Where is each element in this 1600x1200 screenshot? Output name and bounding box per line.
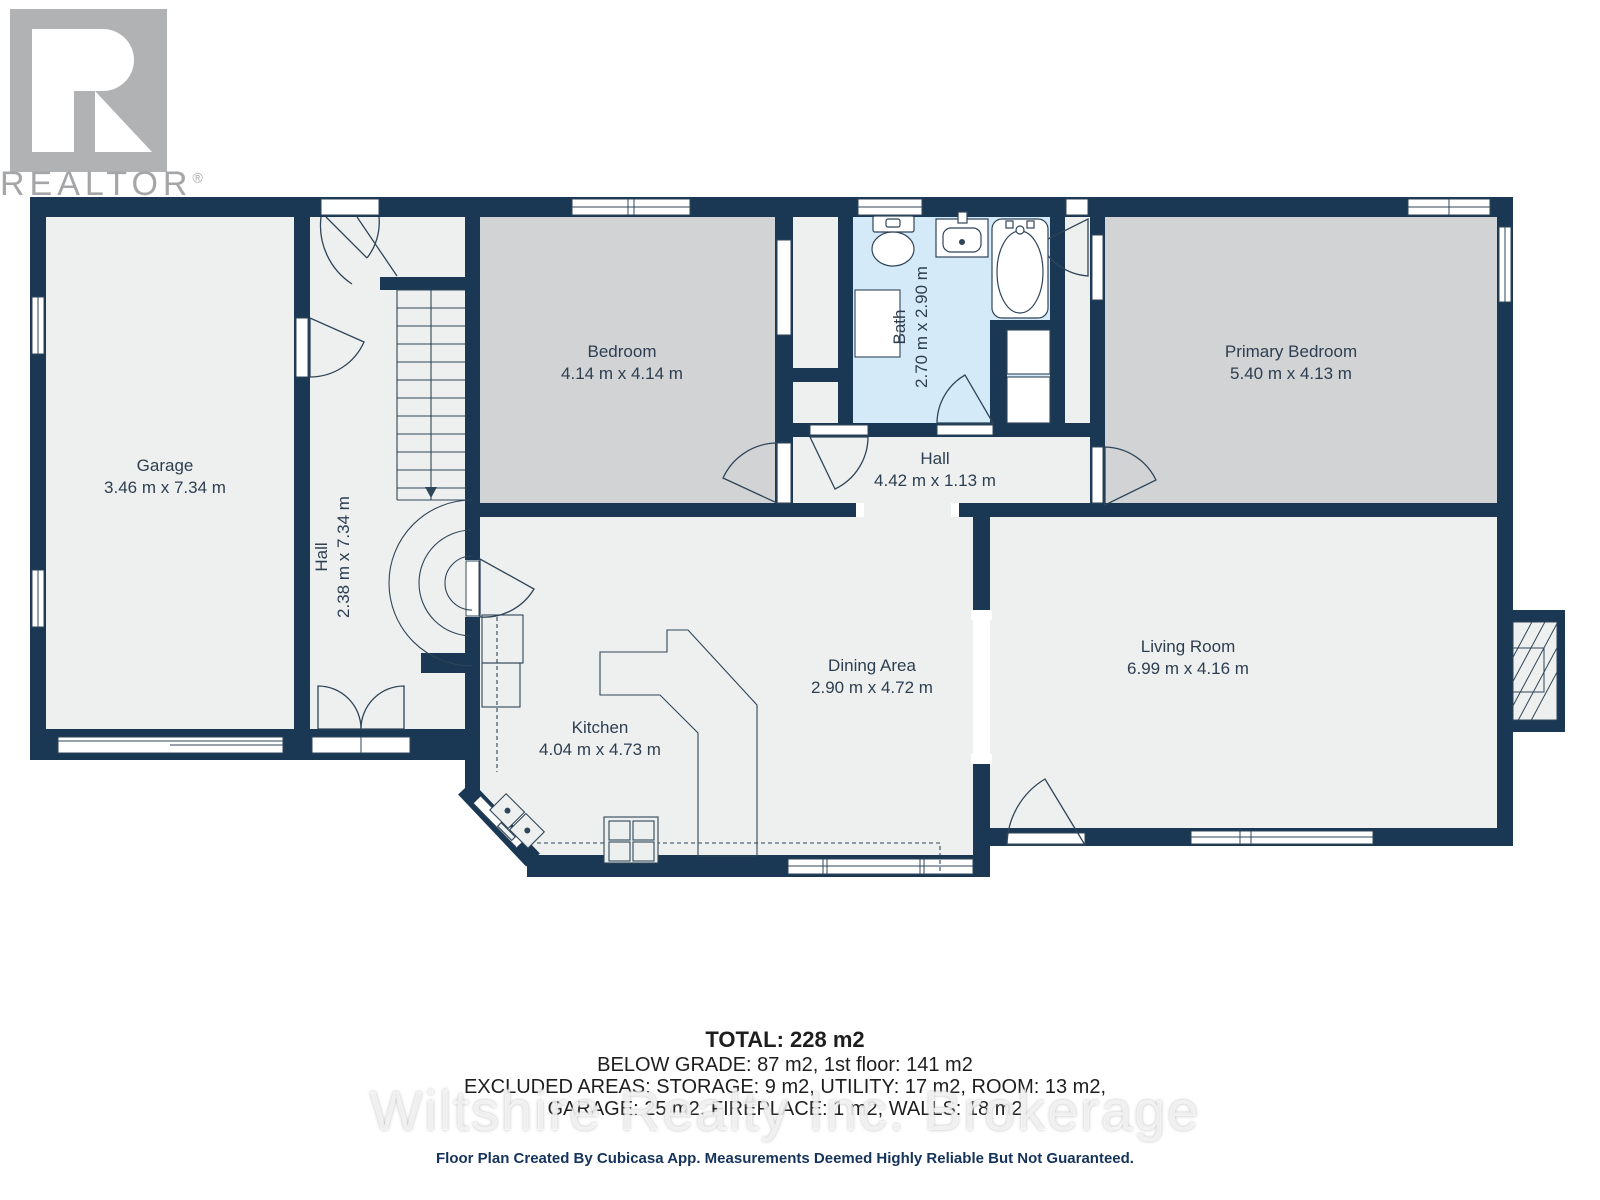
opening-jamb (971, 754, 992, 764)
room-name: Living Room (1127, 636, 1249, 658)
room-dims: 6.99 m x 4.16 m (1127, 658, 1249, 680)
room-dims: 2.38 m x 7.34 m (333, 496, 355, 618)
room-label-bath: Bath 2.70 m x 2.90 m (889, 266, 933, 388)
dining-opening (862, 503, 953, 517)
room-name: Primary Bedroom (1225, 341, 1357, 363)
room-dims: 2.90 m x 4.72 m (811, 677, 933, 699)
summary-excluded-1: EXCLUDED AREAS: STORAGE: 9 m2, UTILITY: … (0, 1076, 1570, 1098)
room-label-garage: Garage 3.46 m x 7.34 m (104, 455, 226, 499)
room-dims: 4.04 m x 4.73 m (539, 739, 661, 761)
room-dims: 4.14 m x 4.14 m (561, 363, 683, 385)
bathtub-icon (992, 219, 1048, 318)
sink-icon (936, 212, 988, 257)
room-dims: 5.40 m x 4.13 m (1225, 363, 1357, 385)
room-dims: 4.42 m x 1.13 m (874, 470, 996, 492)
room-name: Bath (889, 266, 911, 388)
room-label-living-room: Living Room 6.99 m x 4.16 m (1127, 636, 1249, 680)
opening-jamb (951, 503, 959, 517)
room-dims: 2.70 m x 2.90 m (911, 266, 933, 388)
toilet-icon (872, 216, 914, 266)
room-label-bedroom: Bedroom 4.14 m x 4.14 m (561, 341, 683, 385)
room-label-hall-upper: Hall 4.42 m x 1.13 m (874, 448, 996, 492)
room-label-dining-area: Dining Area 2.90 m x 4.72 m (811, 655, 933, 699)
summary-excluded-2: GARAGE: 25 m2, FIREPLACE: 1 m2, WALLS: 1… (0, 1098, 1570, 1120)
room-name: Hall (874, 448, 996, 470)
room-label-primary-bedroom: Primary Bedroom 5.40 m x 4.13 m (1225, 341, 1357, 385)
room-name: Bedroom (561, 341, 683, 363)
stove (604, 817, 658, 863)
room-name: Hall (311, 496, 333, 618)
summary-total: TOTAL: 228 m2 (0, 1026, 1570, 1054)
summary-below-grade: BELOW GRADE: 87 m2, 1st floor: 141 m2 (0, 1054, 1570, 1076)
room-name: Kitchen (539, 717, 661, 739)
room-label-hall-entry: Hall 2.38 m x 7.34 m (311, 496, 355, 618)
opening-jamb (856, 503, 864, 517)
opening-jamb (971, 610, 992, 620)
room-dims: 3.46 m x 7.34 m (104, 477, 226, 499)
room-name: Dining Area (811, 655, 933, 677)
room-label-kitchen: Kitchen 4.04 m x 4.73 m (539, 717, 661, 761)
area-summary: TOTAL: 228 m2 BELOW GRADE: 87 m2, 1st fl… (0, 1026, 1570, 1120)
disclaimer-text: Floor Plan Created By Cubicasa App. Meas… (0, 1150, 1570, 1167)
room-name: Garage (104, 455, 226, 477)
floor-plan (0, 0, 1600, 1200)
